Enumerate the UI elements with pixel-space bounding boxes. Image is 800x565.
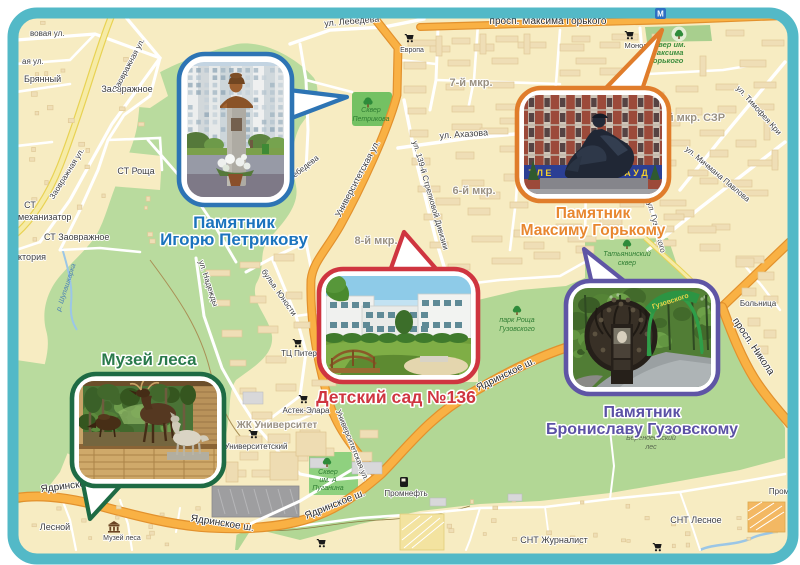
svg-text:Брониславу Гузовскому: Брониславу Гузовскому: [546, 421, 738, 438]
svg-text:сквер: сквер: [618, 260, 636, 267]
svg-text:Астек-Элара: Астек-Элара: [282, 406, 330, 415]
svg-text:Европа: Европа: [400, 47, 424, 54]
svg-text:Заовражное: Заовражное: [101, 84, 152, 94]
svg-text:Музей леса: Музей леса: [103, 534, 141, 542]
svg-text:СТ Заовражное: СТ Заовражное: [44, 232, 109, 242]
svg-text:Университетский: Университетский: [225, 442, 288, 451]
svg-text:Больница: Больница: [740, 299, 777, 308]
svg-text:лес: лес: [644, 444, 657, 451]
svg-text:механизатор: механизатор: [18, 212, 71, 222]
svg-text:СНТ Журналист: СНТ Журналист: [520, 535, 588, 545]
svg-text:М: М: [657, 10, 664, 19]
svg-text:Брянный: Брянный: [24, 74, 61, 84]
svg-text:Лесной: Лесной: [40, 522, 70, 532]
svg-text:7-й мкр.: 7-й мкр.: [449, 77, 492, 89]
svg-text:СТ: СТ: [24, 200, 36, 210]
svg-text:Детский сад №136: Детский сад №136: [316, 387, 476, 407]
svg-text:Максиму Горькому: Максиму Горькому: [521, 222, 666, 239]
svg-text:ЖК Университет: ЖК Университет: [236, 420, 318, 431]
svg-text:вовая ул.: вовая ул.: [30, 29, 65, 38]
svg-text:СНТ Лесное: СНТ Лесное: [670, 515, 721, 525]
svg-text:Промнефть: Промнефть: [384, 489, 427, 498]
svg-text:Музей леса: Музей леса: [101, 350, 197, 369]
svg-text:Игорю Петрикову: Игорю Петрикову: [160, 230, 308, 249]
svg-text:ая ул.: ая ул.: [22, 57, 44, 66]
svg-text:й мкр. СЗР: й мкр. СЗР: [667, 112, 725, 124]
svg-text:ктория: ктория: [18, 252, 46, 262]
svg-text:парк Роща: парк Роща: [499, 317, 534, 324]
svg-text:Пуганина: Пуганина: [312, 485, 343, 492]
svg-text:Сквер: Сквер: [361, 107, 381, 114]
svg-text:им. А: им. А: [319, 477, 337, 484]
svg-text:Памятник: Памятник: [604, 404, 682, 421]
svg-text:СТ Роща: СТ Роща: [117, 166, 154, 176]
svg-text:6-й мкр.: 6-й мкр.: [452, 185, 495, 197]
svg-text:Татьянинский: Татьянинский: [603, 250, 651, 258]
svg-text:Петрикова: Петрикова: [352, 116, 389, 123]
svg-text:Памятник: Памятник: [556, 205, 631, 222]
svg-text:Сквер: Сквер: [318, 469, 338, 476]
svg-text:ТЦ Питер: ТЦ Питер: [281, 349, 317, 358]
svg-text:Пром: Пром: [769, 487, 789, 496]
svg-text:8-й мкр.: 8-й мкр.: [354, 235, 397, 247]
svg-text:Гузовского: Гузовского: [499, 326, 535, 333]
